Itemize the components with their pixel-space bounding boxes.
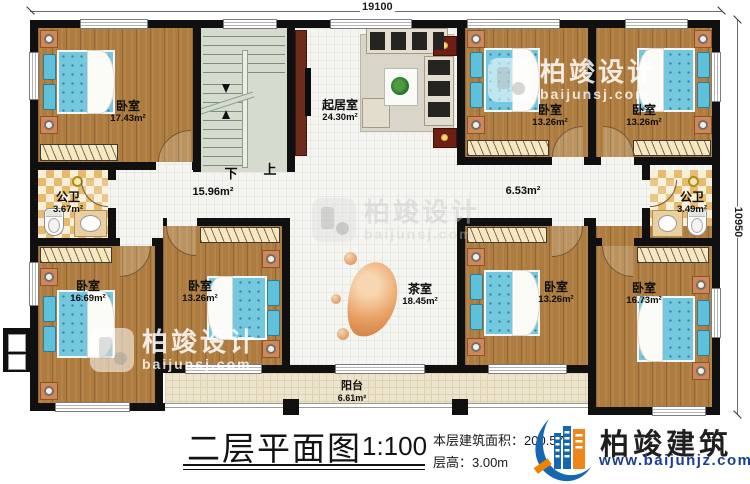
- nightstand: [694, 116, 712, 134]
- bed-pillow: [43, 296, 56, 322]
- bed-pillow: [470, 82, 483, 108]
- ac-unit: [8, 354, 26, 370]
- room-label-bedroom-b3: 卧室13.26m²: [538, 281, 573, 305]
- lamp-icon: [44, 272, 54, 282]
- wall: [30, 162, 156, 170]
- side-table: [433, 128, 457, 148]
- window: [29, 262, 39, 306]
- window: [55, 402, 130, 412]
- stair-arrow-down: [222, 84, 230, 93]
- lamp-icon: [266, 254, 276, 264]
- lamp-icon: [471, 342, 481, 352]
- nightstand: [40, 30, 58, 48]
- bed-pillow: [43, 326, 56, 352]
- plant-icon: [391, 77, 409, 95]
- room-label-bedroom-b2: 卧室13.26m²: [182, 280, 217, 304]
- wardrobe: [200, 227, 280, 243]
- hall-left-area: 15.96m²: [193, 186, 234, 198]
- window: [711, 288, 721, 338]
- lamp-icon: [44, 386, 54, 396]
- lamp-icon: [471, 34, 481, 44]
- window: [625, 19, 688, 29]
- tea-room-decor-dot: [344, 252, 357, 265]
- wall: [588, 20, 596, 165]
- nightstand: [40, 116, 58, 134]
- wall: [108, 165, 116, 180]
- sofa-cushions: [370, 32, 444, 50]
- bed-pillow: [470, 274, 483, 300]
- sink-basin: [80, 215, 101, 232]
- wall: [282, 218, 290, 373]
- lamp-icon: [696, 366, 706, 376]
- wall: [192, 162, 201, 170]
- room-label-bath-right: 公卫3.49m²: [677, 191, 707, 215]
- decor-icon: [441, 134, 448, 141]
- top-dimension-value: 19100: [360, 1, 395, 13]
- wall: [462, 157, 552, 165]
- stair-up-label: 上: [263, 159, 276, 178]
- bed-pillow: [267, 310, 280, 336]
- nightstand: [467, 248, 485, 266]
- window: [80, 19, 148, 29]
- company-url: www.baijunjz.com: [599, 452, 750, 469]
- wall: [108, 208, 116, 238]
- wall: [596, 238, 602, 246]
- wall: [642, 208, 650, 238]
- wardrobe: [40, 247, 112, 263]
- lamp-icon: [266, 344, 276, 354]
- wardrobe: [467, 140, 549, 156]
- room-label-balcony: 阳台6.61m²: [338, 380, 367, 404]
- nightstand: [692, 276, 710, 294]
- window: [223, 19, 277, 29]
- nightstand: [262, 340, 280, 358]
- title-underline: [183, 464, 425, 466]
- nightstand: [694, 30, 712, 48]
- wall: [457, 218, 465, 373]
- bed-pillow: [43, 54, 56, 80]
- window: [711, 52, 721, 102]
- wall: [634, 238, 720, 246]
- balcony-floor: [165, 373, 588, 407]
- floor-plan-page: 19100 10950 下 上: [0, 0, 750, 484]
- balcony-railing: [165, 403, 588, 408]
- toilet-bowl: [691, 218, 703, 233]
- nightstand: [467, 30, 485, 48]
- window: [335, 364, 425, 374]
- window: [467, 19, 560, 29]
- wall: [287, 20, 295, 172]
- nightstand: [40, 268, 58, 286]
- toilet-bowl: [48, 218, 60, 233]
- bed-pillow: [43, 84, 56, 110]
- bed-pillow: [697, 52, 710, 78]
- balcony-column: [283, 399, 299, 415]
- wardrobe: [633, 140, 711, 156]
- wall: [163, 218, 167, 226]
- room-label-bedroom-t3: 卧室13.26m²: [626, 104, 661, 128]
- sofa-cushions: [428, 60, 450, 122]
- wardrobe: [637, 247, 709, 263]
- wall: [642, 165, 650, 180]
- stair-down-label: 下: [224, 163, 237, 182]
- bed-pillow: [470, 52, 483, 78]
- right-dimension-value: 10950: [730, 207, 746, 238]
- balcony-column: [452, 399, 468, 415]
- wall: [462, 218, 552, 226]
- wall: [155, 238, 163, 411]
- wall: [193, 20, 201, 172]
- lamp-icon: [471, 252, 481, 262]
- room-label-bedroom-t2: 卧室13.26m²: [532, 104, 567, 128]
- title-underline: [183, 469, 425, 470]
- wall: [634, 157, 720, 165]
- lamp-icon: [44, 120, 54, 130]
- stair-stringer: [242, 50, 248, 168]
- bed-pillow: [697, 82, 710, 108]
- window: [488, 364, 567, 374]
- lamp-icon: [696, 280, 706, 290]
- nightstand: [467, 338, 485, 356]
- ac-unit: [8, 334, 26, 352]
- window: [330, 19, 412, 29]
- nightstand: [692, 362, 710, 380]
- bed-pillow: [470, 304, 483, 330]
- floor-height-note: 层高：3.00m: [433, 452, 508, 471]
- wardrobe: [467, 227, 547, 243]
- sink-basin: [658, 215, 677, 232]
- wall: [588, 218, 596, 415]
- hall-right-area: 6.53m²: [506, 185, 541, 197]
- lamp-icon: [471, 120, 481, 130]
- bath-lamp-icon: [688, 176, 699, 187]
- lamp-icon: [44, 34, 54, 44]
- page-title: 二层平面图: [187, 422, 362, 470]
- bed-pillow: [267, 280, 280, 306]
- room-label-living: 起居室24.30m²: [322, 99, 358, 123]
- bed-pillow: [697, 300, 710, 326]
- nightstand: [40, 382, 58, 400]
- baijun-logo-icon: [533, 417, 595, 483]
- room-label-bedroom-tl: 卧室17.43m²: [110, 100, 145, 124]
- wall: [277, 20, 330, 28]
- window: [185, 364, 262, 374]
- lamp-icon: [698, 120, 708, 130]
- room-label-tea: 茶室18.45m²: [402, 283, 437, 307]
- wall: [197, 218, 290, 226]
- bed-pillow: [697, 330, 710, 356]
- room-label-bath-left: 公卫3.67m²: [53, 191, 83, 215]
- lamp-icon: [698, 34, 708, 44]
- drawing-scale: 1:100: [362, 431, 427, 462]
- wall: [148, 20, 223, 28]
- tea-room-decor-dot: [331, 294, 341, 304]
- nightstand: [467, 116, 485, 134]
- room-label-bedroom-b4: 卧室16.73m²: [626, 282, 661, 306]
- window: [29, 52, 39, 100]
- wall: [584, 157, 601, 165]
- stair-arrow-up: [222, 110, 230, 119]
- nightstand: [262, 250, 280, 268]
- room-label-bedroom-b1: 卧室16.69m²: [70, 280, 105, 304]
- tv: [305, 68, 311, 116]
- window: [652, 406, 706, 416]
- tea-room-decor-dot: [337, 328, 349, 340]
- wall: [457, 20, 465, 165]
- wardrobe: [40, 144, 118, 161]
- wall: [30, 238, 120, 246]
